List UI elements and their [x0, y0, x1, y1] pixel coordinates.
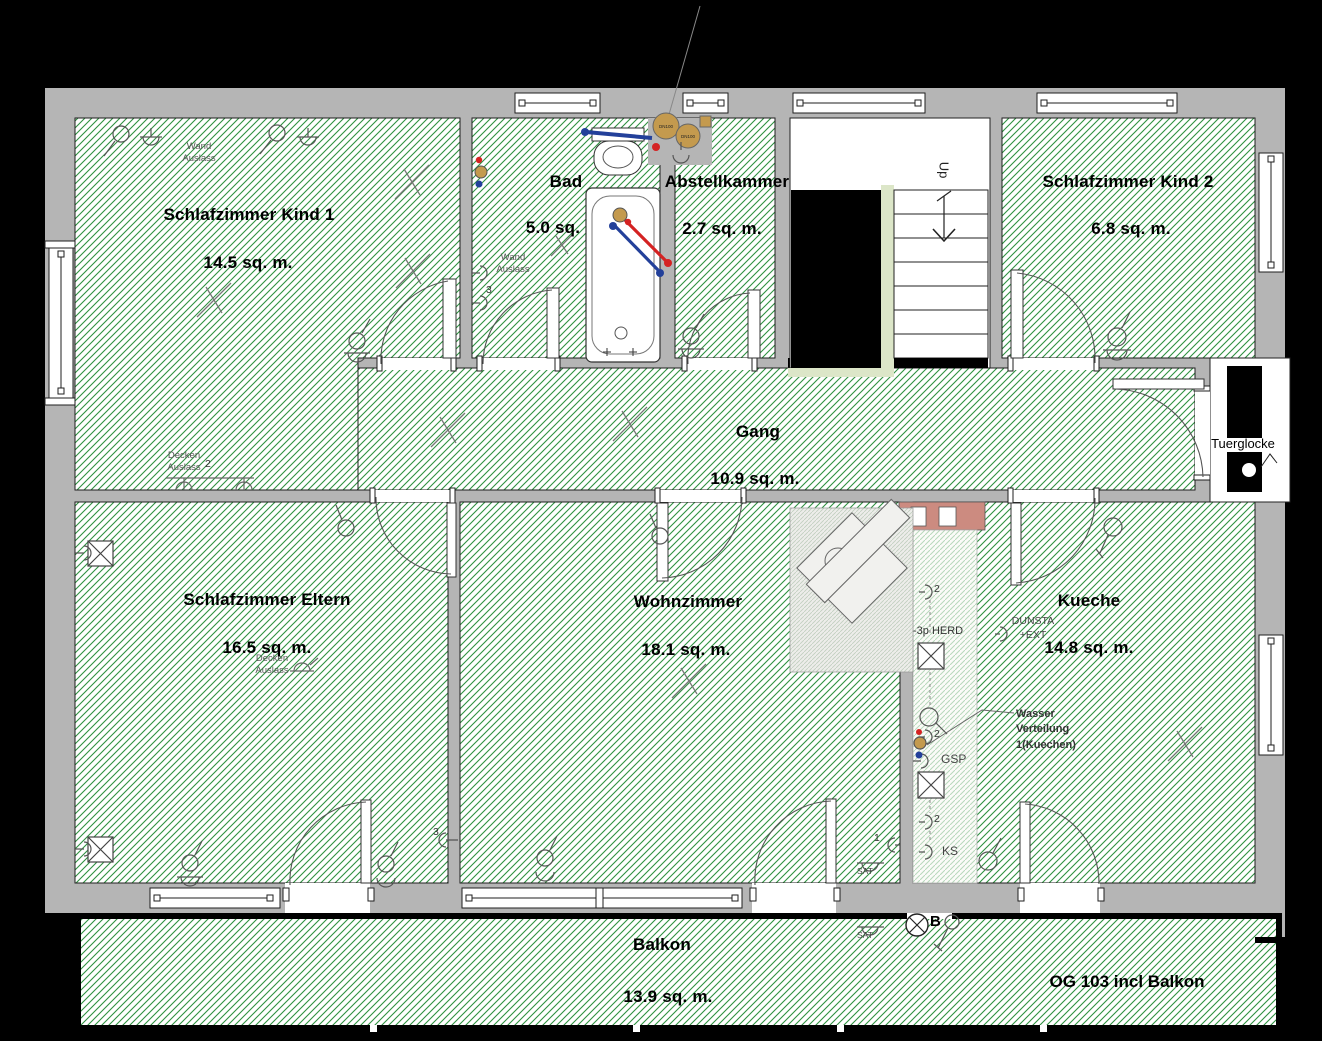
- door: [547, 288, 559, 358]
- door: [361, 800, 371, 883]
- sink-basin: [939, 507, 956, 526]
- doorbell-icon: [1242, 463, 1256, 477]
- sat-label-wohnzimmer: SAT: [857, 867, 873, 876]
- room-label-balkon: Balkon: [633, 936, 691, 953]
- room-area-gang: 10.9 sq. m.: [710, 470, 799, 487]
- doorbell-label: Tuerglocke: [1211, 437, 1275, 450]
- room-label-wohnzimmer: Wohnzimmer: [634, 593, 742, 610]
- decken-auslass-label-eltern: Decken Auslass: [245, 653, 299, 678]
- dn100-label: DN100: [681, 134, 696, 139]
- room-area-balkon: 13.9 sq. m.: [623, 988, 712, 1005]
- door: [1011, 503, 1021, 585]
- window: [150, 888, 280, 908]
- wasser-verteilung-label: Wasser Verteilung 1(Kuechen): [1016, 707, 1092, 753]
- dn100-label: DN100: [659, 124, 674, 129]
- door: [826, 799, 836, 883]
- window: [683, 93, 728, 113]
- room-area-abstellkammer: 2.7 sq. m.: [682, 220, 761, 237]
- wand-auslass-label-bad: Wand Auslass: [486, 252, 540, 277]
- door: [748, 290, 760, 358]
- furniture: [790, 499, 913, 672]
- blower-icon: [906, 914, 928, 936]
- room-kind2-floor: [1002, 118, 1255, 358]
- room-label-gang: Gang: [736, 423, 780, 440]
- room-label-bad: Bad: [550, 173, 583, 190]
- window: [1259, 635, 1283, 755]
- room-label-kind1: Schlafzimmer Kind 1: [163, 206, 334, 223]
- stairs-up-label: Up: [938, 162, 951, 179]
- window: [1259, 153, 1283, 272]
- ks-label: KS: [942, 845, 958, 857]
- window: [515, 93, 600, 113]
- socket-count-top: 2: [934, 584, 940, 595]
- decken-auslass-count-kind1: 2: [205, 459, 211, 470]
- stairwell: [788, 118, 990, 377]
- window: [793, 93, 925, 113]
- wand-auslass-label-kind1: Wand Auslass: [172, 141, 226, 166]
- room-eltern-floor: [75, 502, 448, 883]
- herd-label: -3p HERD: [913, 626, 963, 637]
- sat-label-balkon: SAT: [857, 931, 873, 940]
- room-area-wohnzimmer: 18.1 sq. m.: [641, 641, 730, 658]
- window: [45, 241, 75, 405]
- socket-count-mid: 2: [934, 729, 940, 740]
- door: [657, 503, 668, 581]
- decken-auslass-label-kind1: Decken Auslass: [157, 450, 211, 475]
- window: [1037, 93, 1177, 113]
- door: [1011, 270, 1023, 358]
- wand-auslass-count-bad: 3: [486, 285, 492, 296]
- kitchen-appliance-strip: [913, 530, 977, 883]
- stair-void: [791, 190, 881, 368]
- room-area-bad: 5.0 sq.: [526, 219, 580, 236]
- door: [443, 279, 456, 358]
- gsp-label: GSP: [941, 753, 966, 765]
- room-area-kind2: 6.8 sq. m.: [1091, 220, 1170, 237]
- room-label-eltern: Schlafzimmer Eltern: [183, 591, 350, 608]
- plan-title: OG 103 incl Balkon: [1050, 973, 1205, 990]
- switch-count-eltern: 3: [433, 827, 439, 838]
- herd-outlet-icon: [918, 643, 944, 669]
- gsp-outlet-icon: [918, 772, 944, 798]
- switch-count-wohnzimmer: 1: [874, 833, 880, 844]
- socket-count-bottom: 2: [934, 814, 940, 825]
- stair-flight: [894, 190, 988, 358]
- door: [1020, 802, 1030, 883]
- room-area-kind1: 14.5 sq. m.: [203, 254, 292, 271]
- room-label-kind2: Schlafzimmer Kind 2: [1042, 173, 1213, 190]
- room-label-kueche: Kueche: [1058, 592, 1121, 609]
- window: [462, 888, 742, 908]
- door: [447, 503, 456, 577]
- floor-plan: DN100 DN100: [0, 0, 1322, 1041]
- dunst-label: DUNSTA +EXT: [1006, 614, 1060, 642]
- entry-niche: [1210, 358, 1290, 502]
- blower-label: B: [930, 914, 941, 929]
- door: [1113, 379, 1204, 389]
- bathtub: [586, 188, 672, 362]
- room-label-abstellkammer: Abstellkammer: [665, 173, 790, 190]
